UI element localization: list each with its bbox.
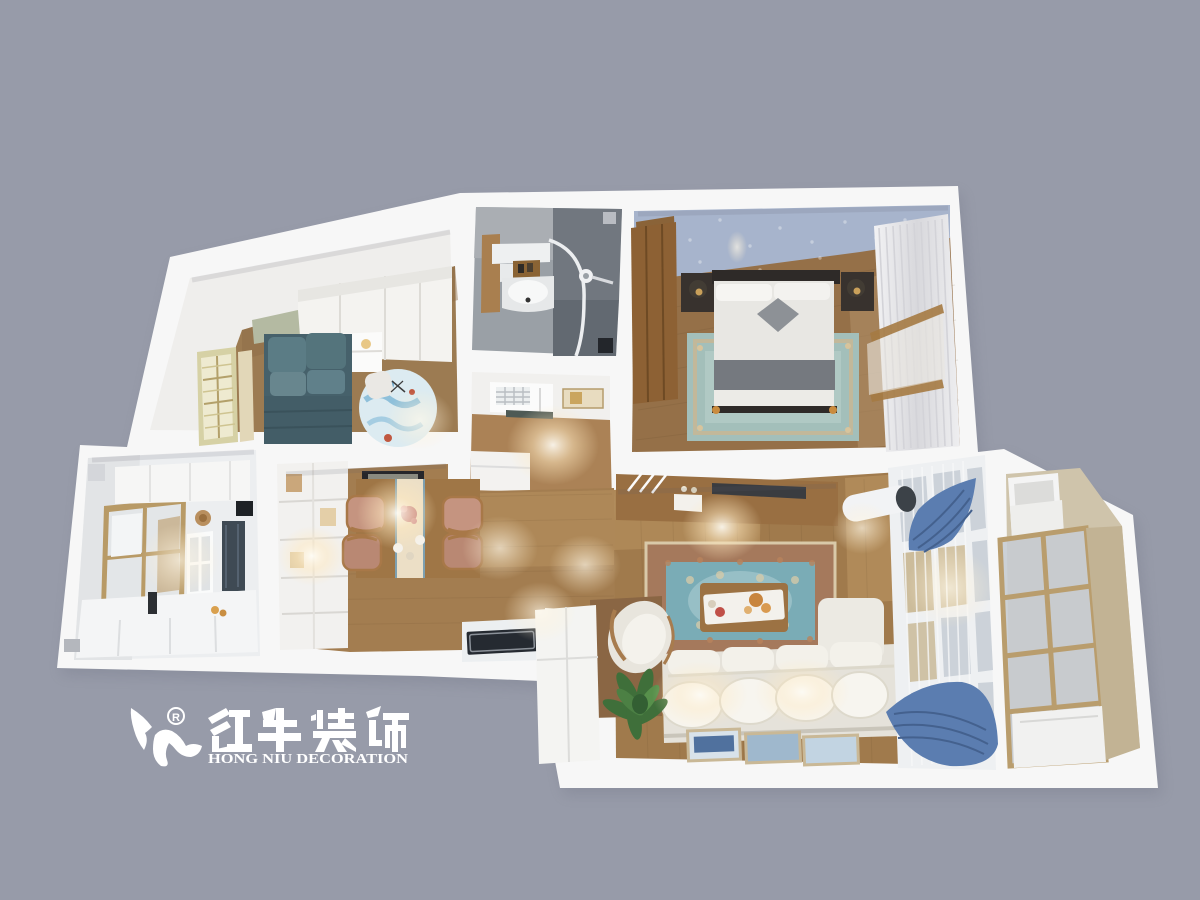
svg-text:HONG NIU DECORATION: HONG NIU DECORATION <box>208 752 408 767</box>
svg-text:R: R <box>172 712 180 724</box>
